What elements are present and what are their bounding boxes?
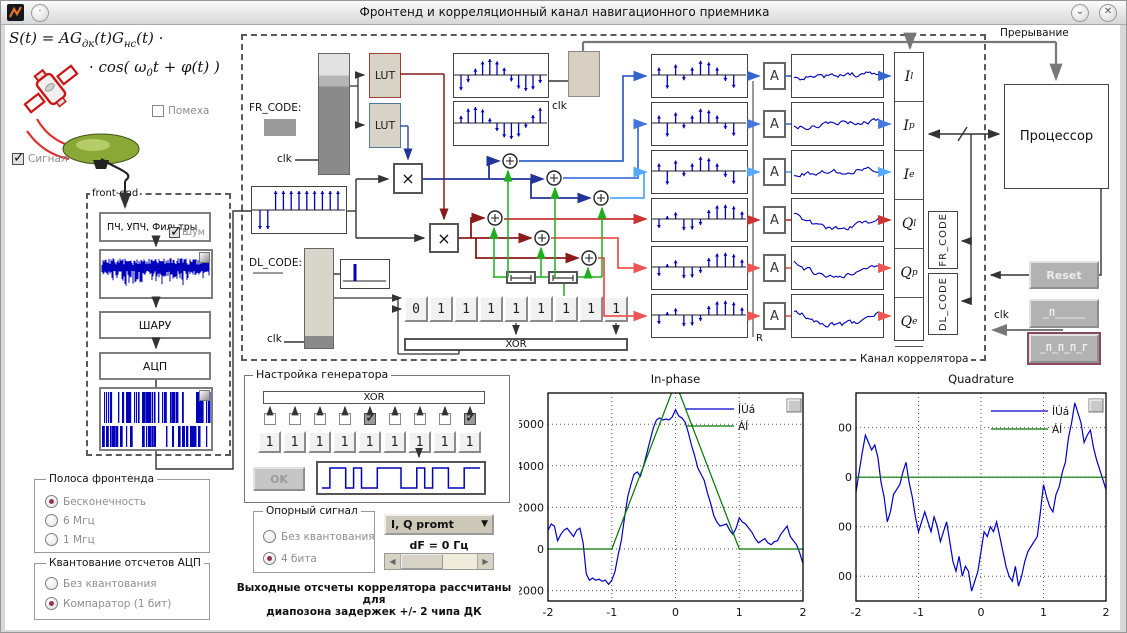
output-register-column: IlIpIeQlQpQe <box>894 52 924 341</box>
svg-text:2: 2 <box>1103 606 1110 619</box>
reset-flag-label: R <box>756 333 763 344</box>
radio-button[interactable] <box>263 530 276 543</box>
svg-text:4000: 4000 <box>519 460 544 473</box>
quant-group-title: Квантование отсчетов АЦП <box>46 557 204 569</box>
shift-register-cell: 1 <box>479 296 503 322</box>
shift-register-cell: 1 <box>579 296 603 322</box>
shift-register-cell: 1 <box>554 296 578 322</box>
row-stem-plot <box>651 198 748 242</box>
xor-block: XOR <box>404 338 628 351</box>
svg-text:-1: -1 <box>606 606 617 619</box>
plot-popup-button[interactable] <box>199 252 210 263</box>
slider-right-arrow[interactable]: ▶ <box>477 554 493 569</box>
row-stem-plot <box>651 102 748 146</box>
carrier-nco-block <box>318 53 350 175</box>
corr-output-Qe: Qe <box>895 298 923 347</box>
svg-text:-2000: -2000 <box>839 570 852 583</box>
svg-text:1: 1 <box>1040 606 1047 619</box>
generator-tap-checkbox[interactable] <box>264 413 276 425</box>
corr-output-Ql: Ql <box>895 200 923 249</box>
generator-register-cell: 1 <box>358 431 381 453</box>
band-group-title: Полоса фронтенда <box>46 473 157 485</box>
corr-output-Il: Il <box>895 53 923 102</box>
svg-text:1000: 1000 <box>839 422 852 435</box>
lut-cos-block: LUT <box>369 53 401 98</box>
generator-register-cell: 1 <box>458 431 481 453</box>
radio-option-band-radios-2[interactable]: 1 Мгц <box>45 529 95 548</box>
generator-register-cell: 1 <box>333 431 356 453</box>
noise-checkbox[interactable]: Шум <box>169 222 205 241</box>
delay-block-1 <box>506 271 536 284</box>
radio-option-band-radios-1[interactable]: 6 Мгц <box>45 510 95 529</box>
fr-code-label: FR_CODE: <box>249 102 301 114</box>
dl-code-vertical-box: DL_CODE <box>928 273 958 335</box>
noise-signal-plot <box>99 249 213 299</box>
reset-button[interactable]: Reset <box>1029 261 1099 289</box>
radio-button[interactable] <box>45 495 58 508</box>
shift-register-cell: 1 <box>454 296 478 322</box>
svg-text:0: 0 <box>845 471 852 484</box>
accumulator-block: A <box>763 254 786 282</box>
accumulator-block: A <box>763 158 786 186</box>
radio-label: 1 Мгц <box>63 534 95 546</box>
plot-popup-button[interactable] <box>199 390 210 401</box>
radio-option-quant-radios-1[interactable]: Компаратор (1 бит) <box>45 593 171 612</box>
row-stem-plot <box>651 54 748 98</box>
note-text: Выходные отсчеты коррелятора рассчитаны … <box>231 582 517 618</box>
checkbox-box <box>169 227 180 238</box>
svg-text:0: 0 <box>672 606 679 619</box>
corr-output-Ip: Ip <box>895 102 923 151</box>
slider-thumb[interactable] <box>401 554 443 569</box>
freq-slider[interactable]: ◀ ▶ <box>384 553 494 570</box>
generator-panel-title: Настройка генератора <box>253 368 391 381</box>
generator-tap-checkbox[interactable] <box>364 413 376 425</box>
generator-tap-checkbox[interactable] <box>464 413 476 425</box>
generator-tap-checkbox[interactable] <box>439 413 451 425</box>
generator-register-cell: 1 <box>258 431 281 453</box>
radio-button[interactable] <box>45 533 58 546</box>
window-title: Фронтенд и корреляционный канал навигаци… <box>1 5 1127 19</box>
radio-label: Без квантования <box>281 531 375 543</box>
generator-register-cell: 1 <box>283 431 306 453</box>
inphase-chart: -20000200040006000-2-1012In-phaseÍÚáÁÍ <box>519 371 819 633</box>
accumulator-block: A <box>763 206 786 234</box>
accumulator-block: A <box>763 302 786 330</box>
pulse-train-button[interactable]: _П_П_П_Г <box>1029 334 1099 363</box>
corr-output-Ie: Ie <box>895 151 923 200</box>
generator-tap-checkbox[interactable] <box>389 413 401 425</box>
svg-text:-2: -2 <box>543 606 554 619</box>
signal-checkbox[interactable]: Сигнал <box>12 148 68 167</box>
clk-label-3: clk <box>267 333 282 345</box>
legend-popup-button[interactable] <box>1089 399 1103 412</box>
radio-button[interactable] <box>45 597 58 610</box>
radio-label: Бесконечность <box>63 496 146 508</box>
svg-text:-2: -2 <box>851 606 862 619</box>
processor-block: Процессор <box>1004 84 1109 189</box>
radio-option-quant-radios-0[interactable]: Без квантования <box>45 573 157 592</box>
shift-register-cell: 1 <box>529 296 553 322</box>
sin-table-plot <box>453 101 549 146</box>
app-window: · Фронтенд и корреляционный канал навига… <box>0 0 1127 633</box>
pulse-single-button[interactable]: _П_____ <box>1029 299 1099 328</box>
generator-tap-checkbox[interactable] <box>414 413 426 425</box>
legend-label: ÍÚá <box>1052 405 1069 418</box>
slider-left-arrow[interactable]: ◀ <box>385 554 401 569</box>
mixer-q-block: × <box>429 223 459 253</box>
cos-table-plot <box>453 53 549 98</box>
correlator-label: Канал коррелятора <box>857 353 971 365</box>
radio-label: 4 бита <box>281 553 317 565</box>
legend-label: ÁÍ <box>738 420 748 433</box>
fr-code-vertical-box: FR_CODE <box>928 211 958 269</box>
legend-label: ÍÚá <box>738 403 755 416</box>
svg-text:2000: 2000 <box>519 501 544 514</box>
chip-pulse-plot <box>340 259 390 289</box>
radio-label: Компаратор (1 бит) <box>63 598 171 610</box>
interrupt-label: Прерывание <box>1000 27 1069 39</box>
row-accum-plot <box>791 198 884 242</box>
svg-text:6000: 6000 <box>519 418 544 431</box>
radio-button[interactable] <box>263 552 276 565</box>
dl-code-swatch <box>253 272 283 274</box>
svg-text:-1: -1 <box>913 606 924 619</box>
generator-tap-checkbox[interactable] <box>339 413 351 425</box>
clk-label-1: clk <box>277 153 292 165</box>
accumulator-block: A <box>763 110 786 138</box>
clk-label-2: clk <box>552 100 567 112</box>
generator-register-cell: 1 <box>383 431 406 453</box>
dl-code-label: DL_CODE: <box>249 257 302 269</box>
radio-button[interactable] <box>45 514 58 527</box>
legend-label: ÁÍ <box>1052 423 1062 436</box>
close-button[interactable]: ✕ <box>1099 4 1117 22</box>
row-accum-plot <box>791 102 884 146</box>
fr-code-swatch <box>264 119 296 136</box>
frontend-label: front-end <box>90 188 140 199</box>
svg-text:-2000: -2000 <box>519 585 544 598</box>
row-stem-plot <box>651 246 748 290</box>
quadrature-chart: -2000-100001000-2-1012QuadratureÍÚáÁÍ <box>839 371 1127 633</box>
delay-block-2 <box>548 271 578 284</box>
checkbox-box <box>152 105 164 117</box>
if-filters-block: ПЧ, УПЧ, Фильтры Шум <box>99 212 211 242</box>
clk-label-4: clk <box>994 309 1009 321</box>
row-accum-plot <box>791 246 884 290</box>
sample-clock-block <box>568 51 600 97</box>
svg-text:2: 2 <box>800 606 807 619</box>
row-stem-plot <box>651 150 748 194</box>
checkbox-box <box>12 153 24 165</box>
generator-waveform-plot <box>316 461 486 495</box>
output-select[interactable]: I, Q promt ▼ <box>384 514 494 535</box>
input-code-plot <box>251 186 347 234</box>
radio-option-ref-radios-1[interactable]: 4 бита <box>263 548 317 567</box>
svg-text:-1000: -1000 <box>839 521 852 534</box>
svg-text:1: 1 <box>736 606 743 619</box>
shift-register-cell: 0 <box>404 296 428 322</box>
generator-register-cell: 1 <box>433 431 456 453</box>
shift-register-cell: 1 <box>604 296 628 322</box>
ok-button[interactable]: OK <box>253 467 305 491</box>
legend-popup-button[interactable] <box>787 399 801 412</box>
chart-title: In-phase <box>651 372 701 386</box>
adc-block: АЦП <box>99 352 211 380</box>
lut-sin-block: LUT <box>369 103 401 148</box>
generator-tap-checkbox[interactable] <box>289 413 301 425</box>
mixer-i-block: × <box>393 163 423 194</box>
svg-text:0: 0 <box>978 606 985 619</box>
row-accum-plot <box>791 294 884 338</box>
generator-xor-block: XOR <box>263 391 485 404</box>
bitstream-plot <box>99 387 213 451</box>
svg-text:0: 0 <box>537 543 544 556</box>
radio-label: Без квантования <box>63 578 157 590</box>
dropdown-arrow-icon: ▼ <box>481 516 488 533</box>
radio-option-band-radios-0[interactable]: Бесконечность <box>45 491 146 510</box>
row-accum-plot <box>791 150 884 194</box>
accumulator-block: A <box>763 62 786 90</box>
row-accum-plot <box>791 54 884 98</box>
chart-title: Quadrature <box>948 372 1014 386</box>
corr-output-Qp: Qp <box>895 249 923 298</box>
shift-register-cell: 1 <box>504 296 528 322</box>
code-nco-block <box>304 248 334 349</box>
agc-block: ШАРУ <box>99 311 211 339</box>
generator-register-cell: 1 <box>308 431 331 453</box>
reference-group-title: Опорный сигнал <box>263 505 361 517</box>
title-bar: · Фронтенд и корреляционный канал навига… <box>1 1 1127 25</box>
generator-tap-checkbox[interactable] <box>314 413 326 425</box>
radio-label: 6 Мгц <box>63 515 95 527</box>
pomeha-checkbox[interactable]: Помеха <box>152 100 209 119</box>
radio-option-ref-radios-0[interactable]: Без квантования <box>263 526 375 545</box>
row-stem-plot <box>651 294 748 338</box>
df-label: dF = 0 Гц <box>384 539 494 552</box>
shift-register-cell: 1 <box>429 296 453 322</box>
radio-button[interactable] <box>45 577 58 590</box>
shade-button[interactable]: ⌄ <box>1071 4 1089 22</box>
generator-register-cell: 1 <box>408 431 431 453</box>
